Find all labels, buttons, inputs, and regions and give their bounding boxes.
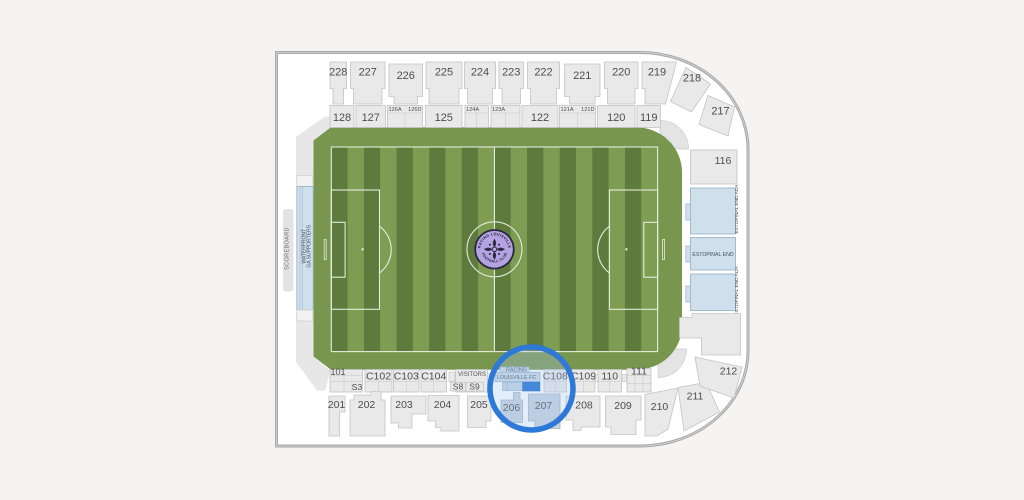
svg-text:S8: S8: [453, 382, 464, 392]
svg-text:202: 202: [358, 399, 376, 411]
svg-text:S3: S3: [352, 382, 363, 392]
svg-text:225: 225: [435, 67, 453, 79]
svg-text:111: 111: [631, 366, 647, 378]
svg-text:201: 201: [328, 399, 346, 411]
svg-text:126A: 126A: [389, 107, 402, 113]
svg-text:125: 125: [435, 112, 453, 124]
svg-text:101: 101: [330, 367, 345, 377]
svg-text:ESTOPINAL END: ESTOPINAL END: [692, 252, 733, 258]
svg-text:ESTOPINAL END ADA: ESTOPINAL END ADA: [734, 266, 740, 316]
svg-text:C102: C102: [366, 370, 391, 382]
svg-text:203: 203: [395, 399, 413, 411]
svg-text:119: 119: [640, 112, 658, 124]
svg-text:220: 220: [612, 67, 630, 79]
svg-text:222: 222: [534, 67, 552, 79]
svg-text:110: 110: [601, 370, 618, 382]
svg-text:211: 211: [687, 391, 704, 403]
svg-text:221: 221: [573, 70, 591, 82]
svg-text:S9: S9: [469, 382, 480, 392]
svg-text:126D: 126D: [408, 107, 421, 113]
svg-text:123A: 123A: [492, 107, 505, 113]
svg-text:122: 122: [531, 112, 549, 124]
svg-text:223: 223: [502, 67, 520, 79]
svg-text:C104: C104: [421, 370, 446, 382]
svg-text:C103: C103: [394, 370, 419, 382]
svg-text:224: 224: [471, 67, 489, 79]
svg-text:VISITORS: VISITORS: [458, 372, 486, 378]
svg-text:121D: 121D: [581, 107, 594, 113]
svg-text:124A: 124A: [466, 107, 479, 113]
svg-text:212: 212: [720, 366, 738, 378]
svg-text:219: 219: [648, 67, 666, 79]
svg-text:209: 209: [614, 400, 632, 412]
svg-text:ESTOPINAL END ADA: ESTOPINAL END ADA: [734, 184, 740, 234]
svg-text:127: 127: [362, 112, 380, 124]
svg-text:SCOREBOARD: SCOREBOARD: [284, 227, 290, 270]
svg-text:227: 227: [359, 67, 377, 79]
svg-text:120: 120: [607, 112, 625, 124]
svg-text:116: 116: [715, 155, 732, 167]
svg-text:208: 208: [575, 400, 593, 412]
svg-text:210: 210: [651, 401, 669, 413]
svg-text:128: 128: [333, 112, 351, 124]
svg-text:GA SUPPORTERS: GA SUPPORTERS: [307, 224, 313, 267]
svg-text:226: 226: [397, 70, 415, 82]
svg-text:204: 204: [434, 399, 452, 411]
svg-text:205: 205: [470, 399, 488, 411]
svg-text:121A: 121A: [561, 107, 574, 113]
svg-text:218: 218: [683, 73, 701, 85]
svg-text:228: 228: [329, 67, 347, 79]
svg-text:217: 217: [711, 106, 729, 118]
